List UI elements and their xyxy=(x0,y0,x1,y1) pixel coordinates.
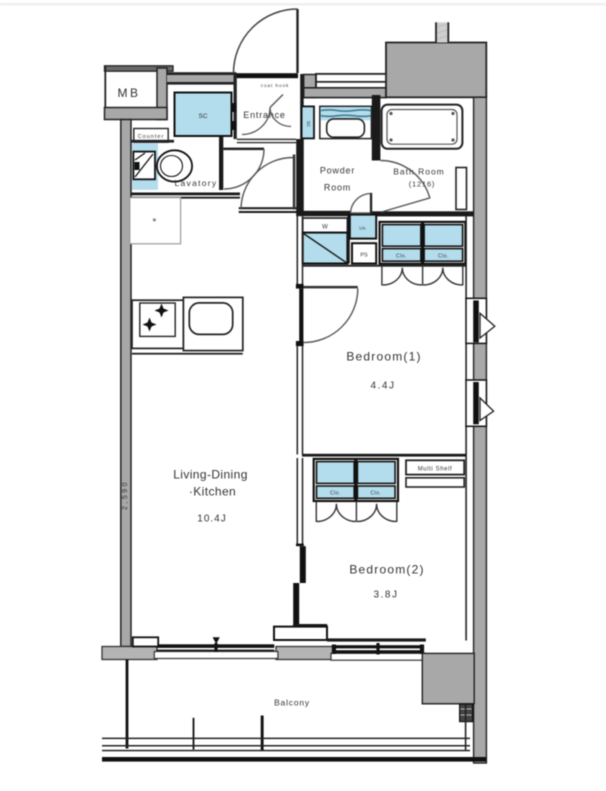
svg-text:Lin.: Lin. xyxy=(359,226,366,231)
svg-text:4.4J: 4.4J xyxy=(371,381,396,392)
svg-text:Lavatory: Lavatory xyxy=(174,178,217,188)
svg-text:Clo.: Clo. xyxy=(330,491,341,497)
svg-text:Living-Dining: Living-Dining xyxy=(173,468,248,482)
svg-text:Entrance: Entrance xyxy=(243,110,285,120)
svg-text:SC: SC xyxy=(198,113,207,120)
svg-text:Powder: Powder xyxy=(320,166,355,176)
svg-text:Bedroom(2): Bedroom(2) xyxy=(349,563,424,577)
svg-text:SC: SC xyxy=(306,121,311,128)
svg-text:3.8J: 3.8J xyxy=(374,590,399,601)
svg-text:10.4J: 10.4J xyxy=(197,514,226,525)
svg-text:Clo.: Clo. xyxy=(371,491,382,497)
svg-text:Counter: Counter xyxy=(138,134,165,140)
svg-text:Clo.: Clo. xyxy=(396,254,407,260)
svg-text:Balcony: Balcony xyxy=(274,698,310,708)
svg-text:W: W xyxy=(322,225,328,231)
svg-text:·Kitchen: ·Kitchen xyxy=(189,485,236,499)
svg-text:2,590: 2,590 xyxy=(122,480,129,510)
svg-text:Multi Shelf: Multi Shelf xyxy=(418,467,453,473)
svg-text:Clo.: Clo. xyxy=(438,254,449,260)
svg-text:Bedroom(1): Bedroom(1) xyxy=(346,350,421,364)
svg-text:Room: Room xyxy=(324,183,351,193)
svg-text:coat hook: coat hook xyxy=(261,83,290,88)
svg-text:PS: PS xyxy=(360,253,368,259)
svg-text:MB: MB xyxy=(118,86,141,100)
svg-text:Bath Room: Bath Room xyxy=(393,167,445,177)
